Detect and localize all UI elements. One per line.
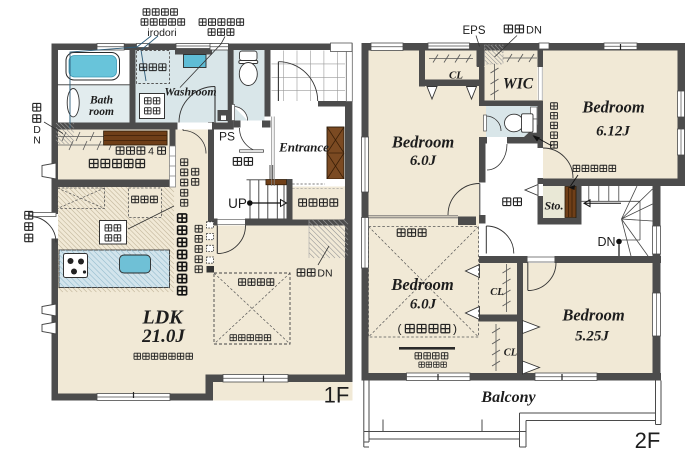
svg-text:DN: DN bbox=[317, 268, 332, 280]
svg-text:room: room bbox=[89, 106, 114, 118]
svg-text:): ) bbox=[453, 322, 457, 336]
svg-text:1F: 1F bbox=[324, 383, 350, 408]
svg-text:UP: UP bbox=[228, 196, 247, 211]
svg-text:Bedroom: Bedroom bbox=[391, 133, 455, 152]
svg-text:Washroom: Washroom bbox=[164, 85, 216, 99]
svg-text:DN: DN bbox=[597, 235, 615, 249]
svg-text:4: 4 bbox=[148, 146, 154, 158]
svg-text:5.25J: 5.25J bbox=[575, 329, 609, 345]
svg-text:CL: CL bbox=[449, 70, 463, 82]
svg-text:Sto.: Sto. bbox=[544, 199, 563, 213]
svg-text:Bedroom: Bedroom bbox=[581, 98, 645, 117]
svg-text:Entrance: Entrance bbox=[278, 140, 329, 155]
svg-text:2F: 2F bbox=[635, 428, 661, 453]
svg-text:(: ( bbox=[398, 322, 402, 336]
svg-text:PS: PS bbox=[219, 130, 235, 144]
svg-text:irodori: irodori bbox=[147, 27, 176, 39]
svg-text:WIC: WIC bbox=[503, 76, 534, 93]
svg-text:CL: CL bbox=[490, 287, 503, 298]
svg-text:EPS: EPS bbox=[462, 25, 485, 37]
svg-text:DN: DN bbox=[526, 25, 542, 37]
svg-text:N: N bbox=[33, 135, 41, 147]
svg-text:Balcony: Balcony bbox=[480, 389, 536, 406]
svg-text:21.0J: 21.0J bbox=[141, 326, 185, 347]
svg-text:6.12J: 6.12J bbox=[596, 124, 630, 140]
svg-text:Bedroom: Bedroom bbox=[390, 275, 454, 294]
svg-text:Bedroom: Bedroom bbox=[561, 306, 625, 325]
svg-text:6.0J: 6.0J bbox=[410, 153, 437, 169]
svg-text:6.0J: 6.0J bbox=[410, 297, 437, 313]
svg-text:CL: CL bbox=[504, 348, 517, 359]
svg-text:Bath: Bath bbox=[89, 95, 113, 107]
